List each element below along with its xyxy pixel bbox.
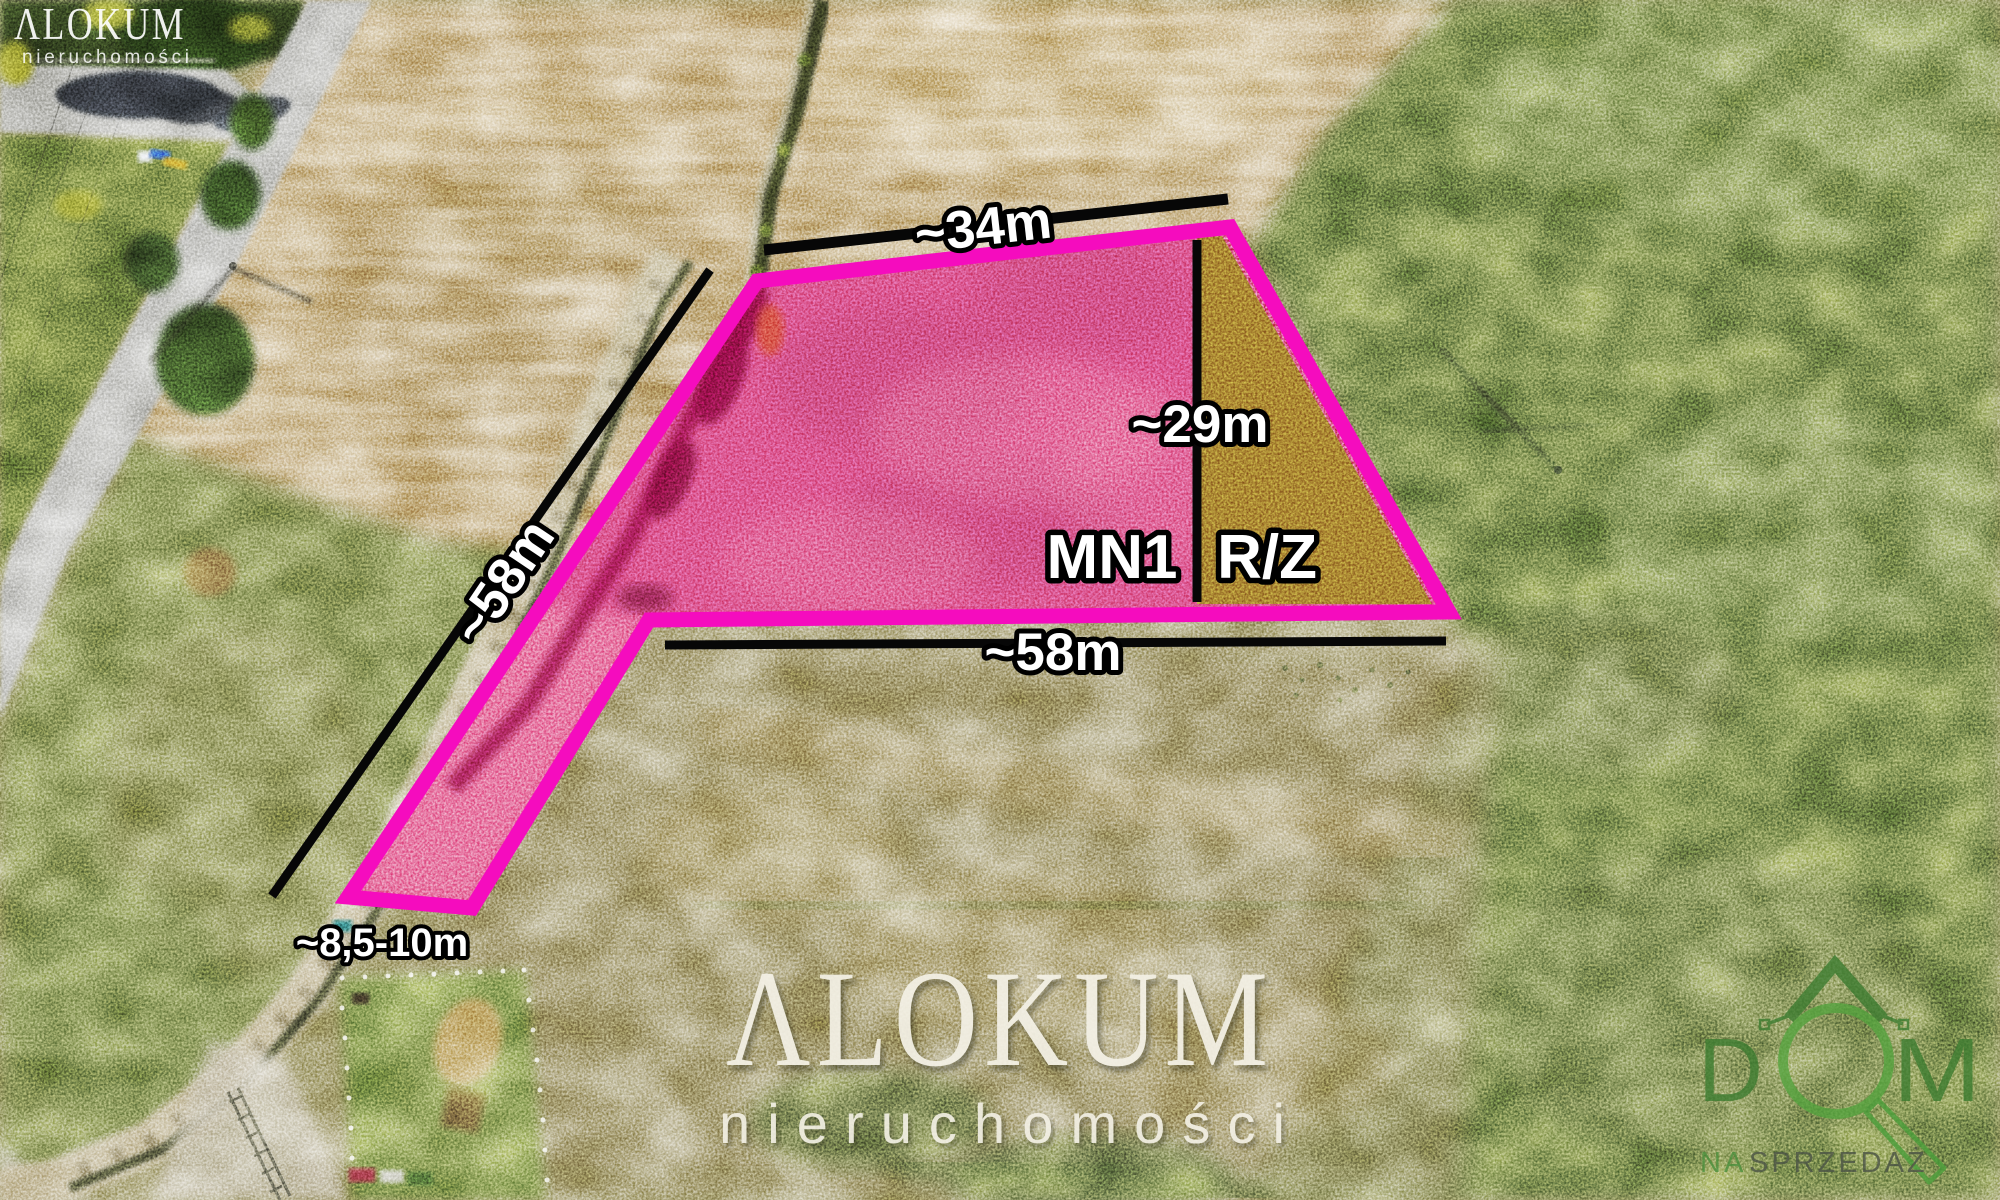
svg-text:~8,5-10m: ~8,5-10m xyxy=(296,921,468,965)
svg-text:M: M xyxy=(1893,1020,1981,1121)
svg-text:ΛLOKUM: ΛLOKUM xyxy=(726,942,1274,1095)
svg-text:nieruchomości: nieruchomości xyxy=(719,1092,1285,1155)
svg-text:~29m: ~29m xyxy=(1131,395,1268,454)
svg-text:SPRZEDAŻ: SPRZEDAŻ xyxy=(1749,1146,1928,1179)
svg-text:~58m: ~58m xyxy=(984,623,1121,682)
svg-text:ΛLOKUM: ΛLOKUM xyxy=(14,0,186,49)
svg-text:MN1: MN1 xyxy=(1047,523,1178,592)
svg-text:NA: NA xyxy=(1700,1147,1746,1179)
svg-text:D: D xyxy=(1698,1021,1763,1121)
svg-text:R/Z: R/Z xyxy=(1217,523,1317,592)
svg-text:nieruchomości: nieruchomości xyxy=(22,47,189,68)
